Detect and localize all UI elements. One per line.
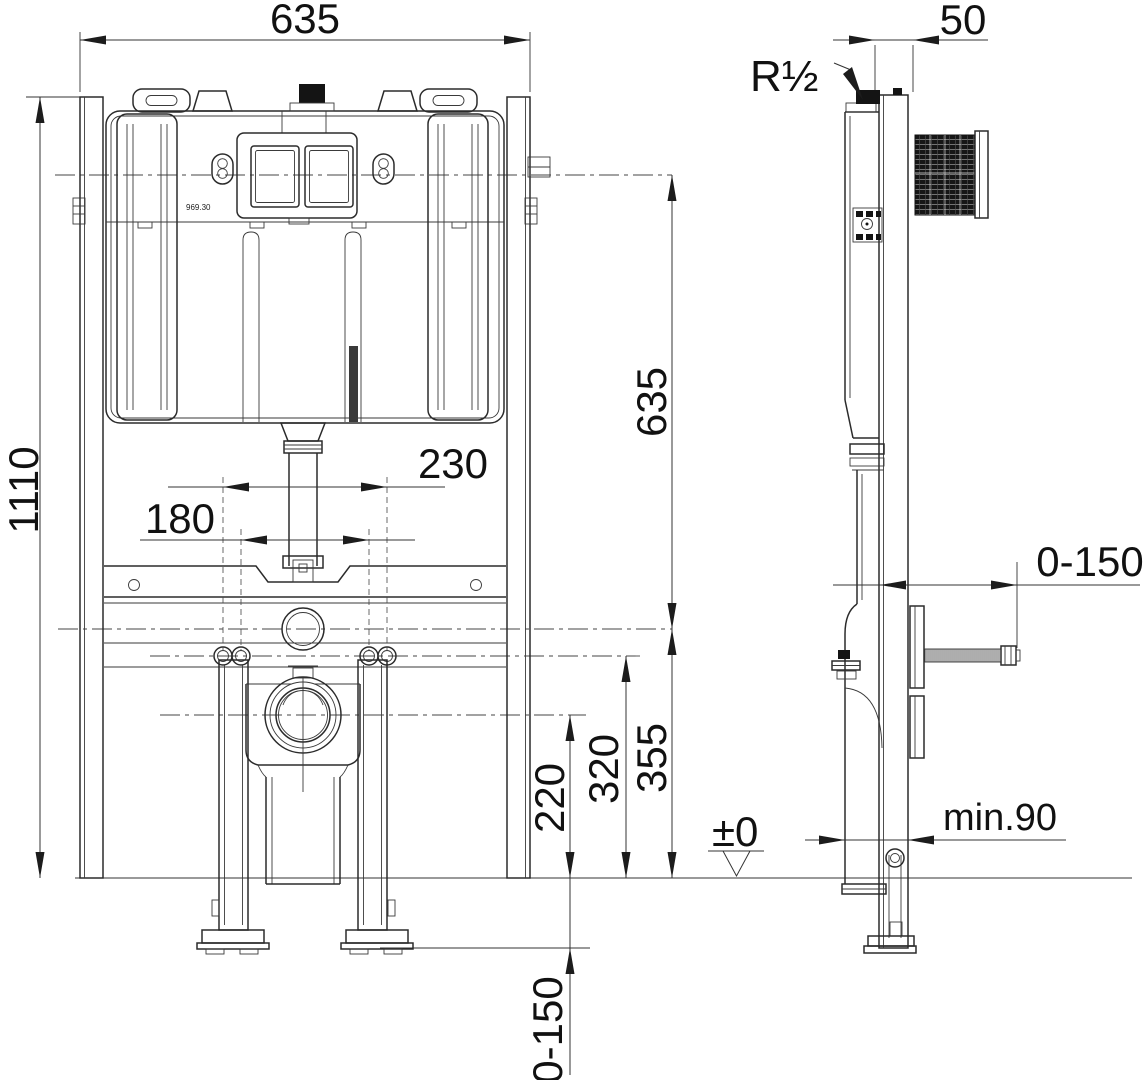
dim-overall-width-label: 635 <box>270 0 340 42</box>
wall-anchor-rod <box>910 606 1020 758</box>
dim-overall-height-label: 1110 <box>0 446 47 533</box>
dim-stud-height: 320 <box>580 656 631 878</box>
marker-floor-level: ±0 <box>708 808 764 876</box>
rod-nut <box>1001 646 1016 665</box>
dim-foot-adjustment-label: 0-150 <box>524 976 571 1080</box>
dim-stud-height-label: 320 <box>580 734 627 804</box>
dim-inlet-height: 355 <box>628 629 677 878</box>
internal-valves <box>243 232 361 422</box>
flush-window-right <box>305 146 353 207</box>
dim-stud-spacing-inner: 180 <box>140 495 415 650</box>
dim-min-clearance: min.90 <box>805 797 1066 845</box>
tank-top-caps <box>133 84 477 112</box>
dim-min-clearance-label: min.90 <box>943 797 1057 839</box>
dim-overall-height: 1110 <box>0 97 80 878</box>
overflow-tube <box>349 346 358 422</box>
leg-left <box>197 660 269 954</box>
plate-hole-left <box>129 580 140 591</box>
wall-mounting-block <box>915 131 988 218</box>
foot-right <box>346 930 408 943</box>
dim-actuator-to-inlet-label: 635 <box>628 367 675 437</box>
side-drain-bend <box>832 604 886 894</box>
drain-outlet <box>246 666 360 884</box>
fastener-boss-right <box>373 154 394 184</box>
flush-window-left <box>251 146 299 207</box>
dim-overall-width: 635 <box>80 0 530 92</box>
foot-left <box>202 930 264 943</box>
dim-stud-spacing-inner-label: 180 <box>145 495 215 542</box>
dim-top-depth: 50 <box>833 0 988 92</box>
mounting-rail-right <box>507 97 550 878</box>
side-frame-rail <box>879 88 908 948</box>
tank-side-panel-right <box>428 114 488 420</box>
plate-hole-right <box>471 580 482 591</box>
leader-arrow-icon <box>843 67 863 100</box>
mounting-rail-left <box>73 97 103 878</box>
inlet-cap <box>299 84 325 103</box>
dim-stud-spacing-outer: 230 <box>168 440 488 650</box>
dim-wall-bracket-range-label: 0-150 <box>1036 538 1143 585</box>
threaded-rod <box>925 649 1001 662</box>
floor-level-label: ±0 <box>712 808 758 855</box>
side-cistern-profile <box>845 90 882 438</box>
label-water-connection: R½ <box>750 52 863 101</box>
dim-stud-spacing-outer-label: 230 <box>418 440 488 487</box>
side-clamp-detail <box>853 208 882 242</box>
drawing-canvas: 969.30 <box>0 0 1144 1080</box>
water-connection-label: R½ <box>750 52 818 101</box>
flush-pipe <box>281 423 325 566</box>
fastener-boss-left <box>212 154 233 184</box>
dim-outlet-height-label: 220 <box>526 763 573 833</box>
dim-inlet-height-label: 355 <box>628 723 675 793</box>
product-code-label: 969.30 <box>186 203 211 212</box>
dim-foot-adjustment: 0-150 <box>524 948 575 1080</box>
centerlines <box>55 175 672 715</box>
dim-top-depth-label: 50 <box>940 0 987 43</box>
leg-right <box>341 660 413 954</box>
technical-drawing: 969.30 <box>0 0 1144 1080</box>
tank-side-panel-left <box>117 114 177 420</box>
